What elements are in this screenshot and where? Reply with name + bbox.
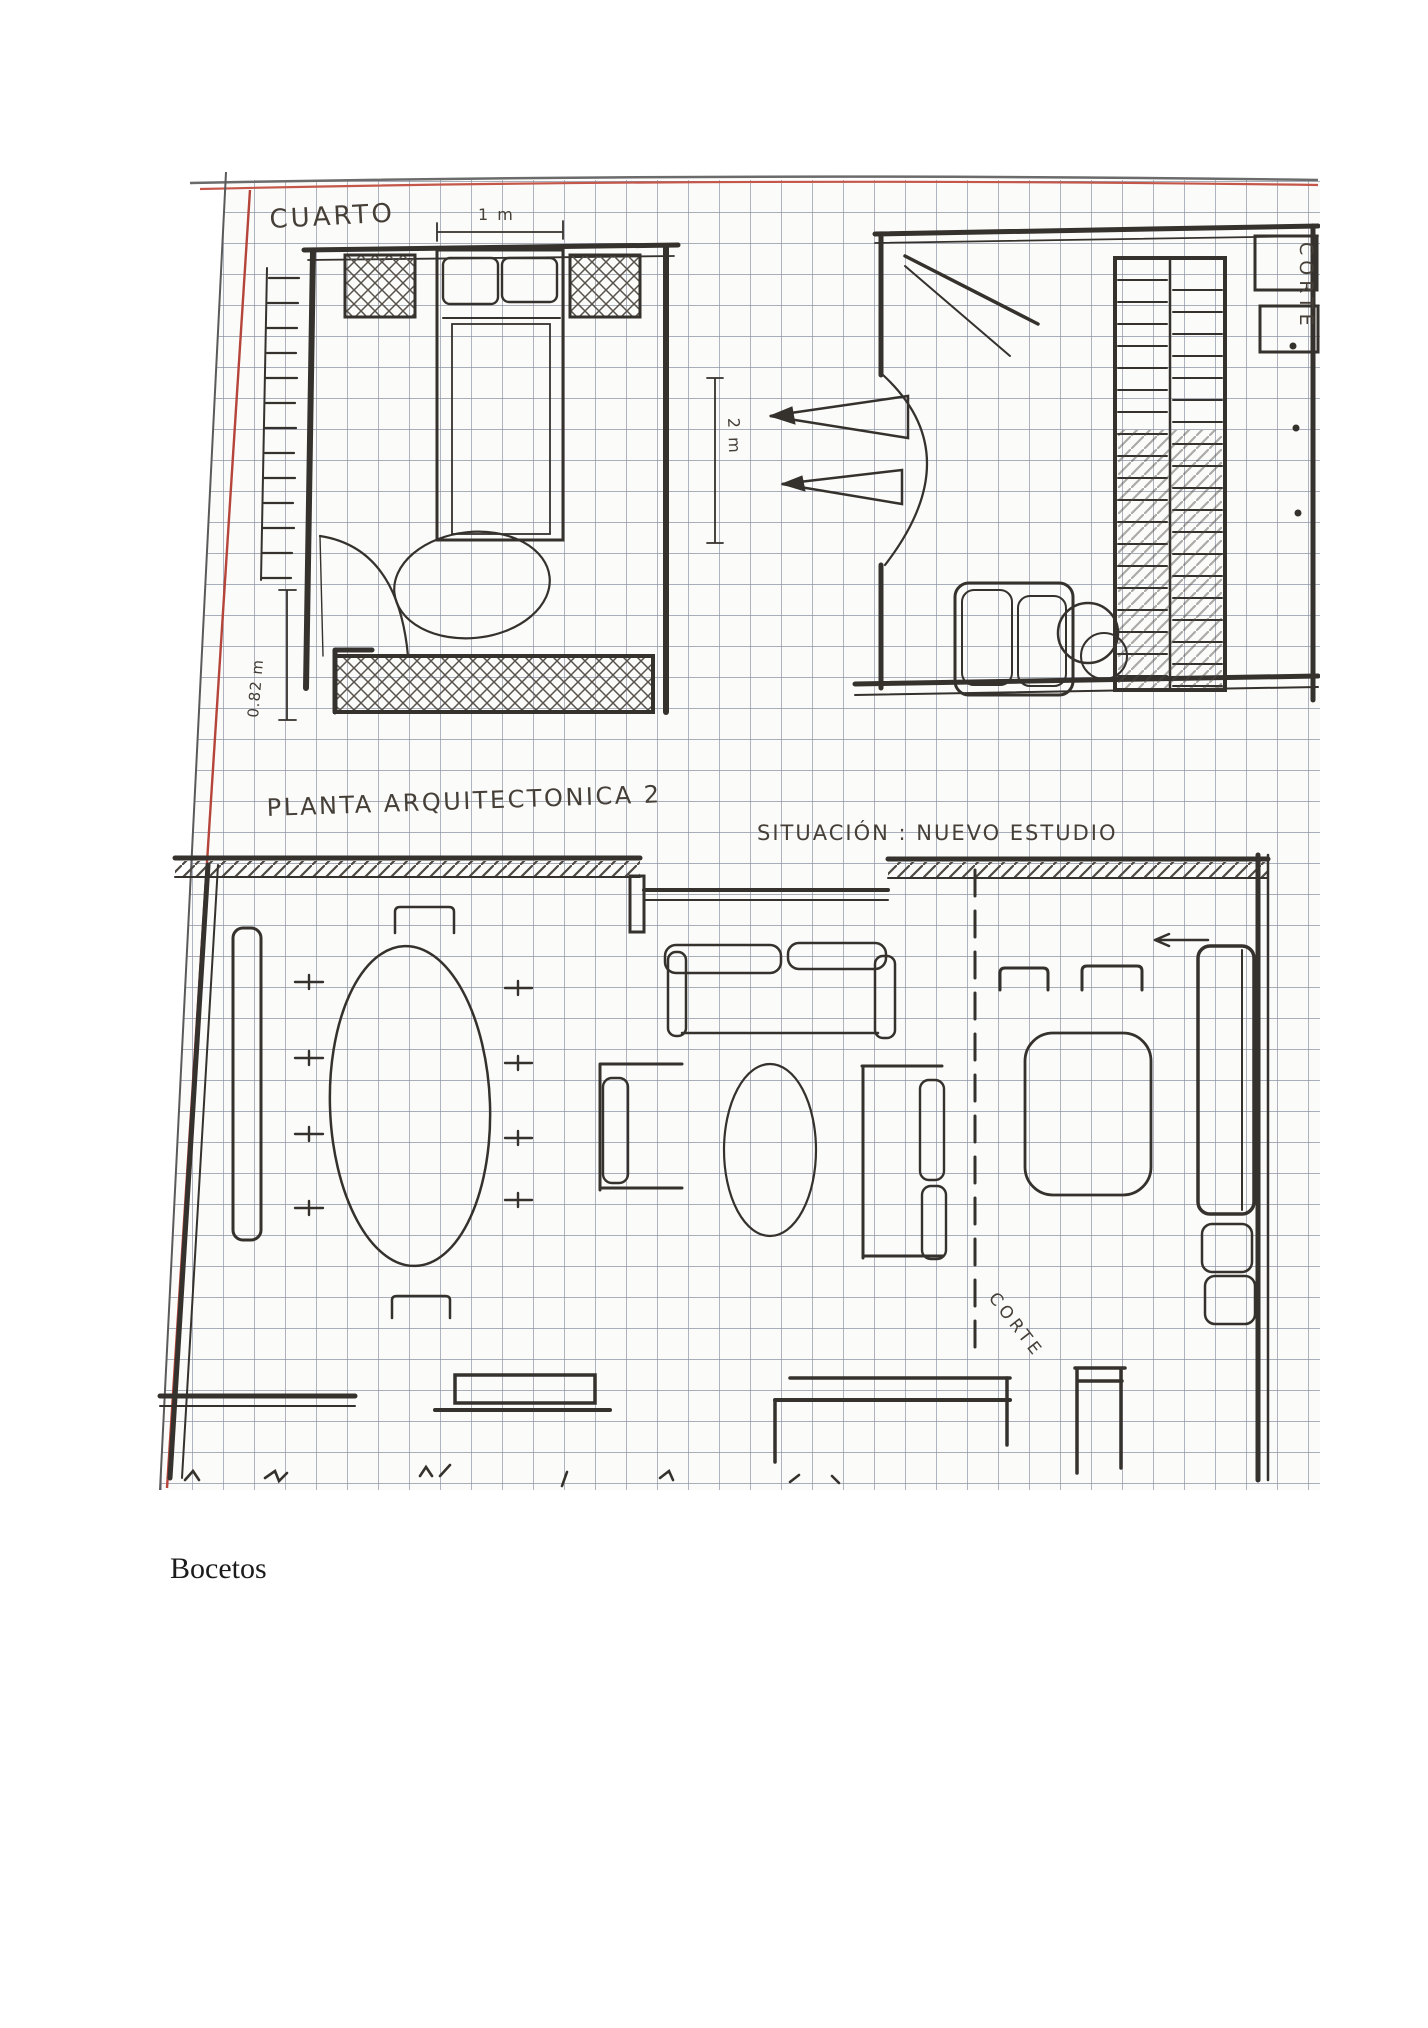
caption-bocetos: Bocetos (170, 1552, 267, 1586)
sketch-scan: CUARTO 1 m 2 m 0.82 m PLANTA ARQUITECTON… (130, 150, 1320, 1490)
dim-label-2m: 2 m (724, 417, 744, 455)
closet-hatched (335, 656, 653, 712)
document-page: CUARTO 1 m 2 m 0.82 m PLANTA ARQUITECTON… (0, 0, 1428, 2028)
situation-title-label: SITUACIÓN : NUEVO ESTUDIO (757, 820, 1117, 845)
dim-label-1m: 1 m (478, 205, 515, 224)
nightstand-right (570, 255, 640, 317)
corte-label-right: CORTE (1295, 242, 1317, 331)
floor-plan-sketch: CUARTO 1 m 2 m 0.82 m PLANTA ARQUITECTON… (130, 150, 1320, 1490)
nightstand-left (345, 255, 415, 317)
